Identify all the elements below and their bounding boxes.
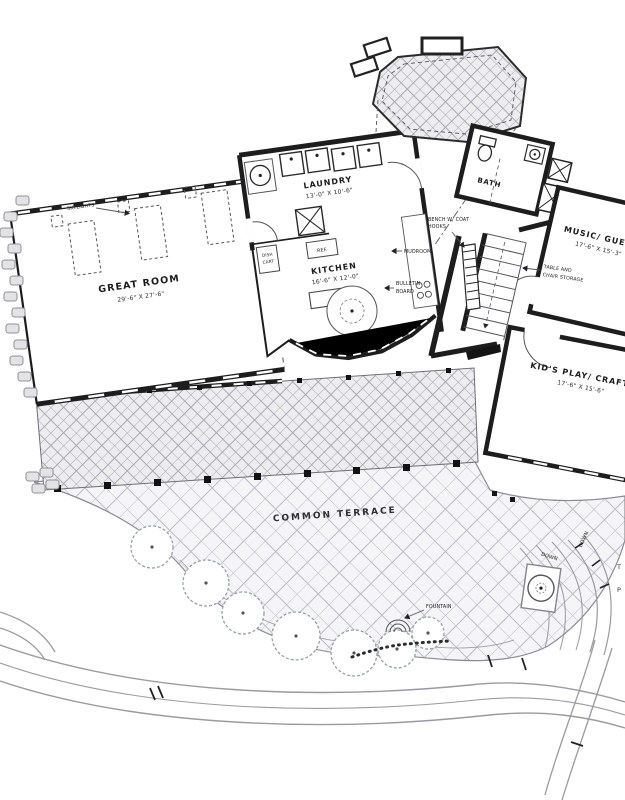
tree-icon [378, 630, 416, 668]
bath-sink-icon [524, 145, 545, 165]
fountain-label: FOUNTAIN [426, 604, 452, 610]
bench-label-line1: BENCH W/ COAT [428, 217, 469, 223]
great-room: SKYLIGHTS GREAT ROOM 29'-6" X 27'-6" [10, 177, 285, 404]
bench-coat-hooks [462, 244, 480, 310]
edge-partial-label-p: P [617, 586, 621, 594]
tree-icon [272, 612, 320, 660]
planter-icon [521, 564, 561, 612]
tree-icon [131, 526, 173, 568]
mudroom-label: MUDROOM [404, 249, 431, 255]
tree-icon [222, 592, 264, 634]
tree-icon [331, 630, 377, 676]
common-terrace: COMMON TERRACE [34, 456, 625, 661]
kids-play-room: KID'S PLAY/ CRAFTS 17'-6" X 15'-6" [485, 327, 625, 484]
terrace-surface [34, 456, 625, 661]
edge-partial-label-t: T [616, 563, 621, 571]
bench-label-line2: HOOKS [428, 224, 446, 230]
closet-x-box [295, 206, 324, 235]
floor-plan-drawing: COMMON TERRACE [0, 0, 625, 800]
refrigerator-box: REF. [306, 239, 338, 259]
column-dot [510, 497, 515, 502]
tower-vestibule [422, 38, 462, 54]
tree-icon [183, 560, 229, 606]
floor-plan-canvas: COMMON TERRACE [0, 0, 625, 800]
column-dot [492, 491, 497, 496]
bulletin-label-line1: BULLETIN [396, 281, 421, 287]
bulletin-label-line2: BOARD [396, 289, 414, 295]
dish-cart-box: DISH CART [256, 245, 279, 274]
